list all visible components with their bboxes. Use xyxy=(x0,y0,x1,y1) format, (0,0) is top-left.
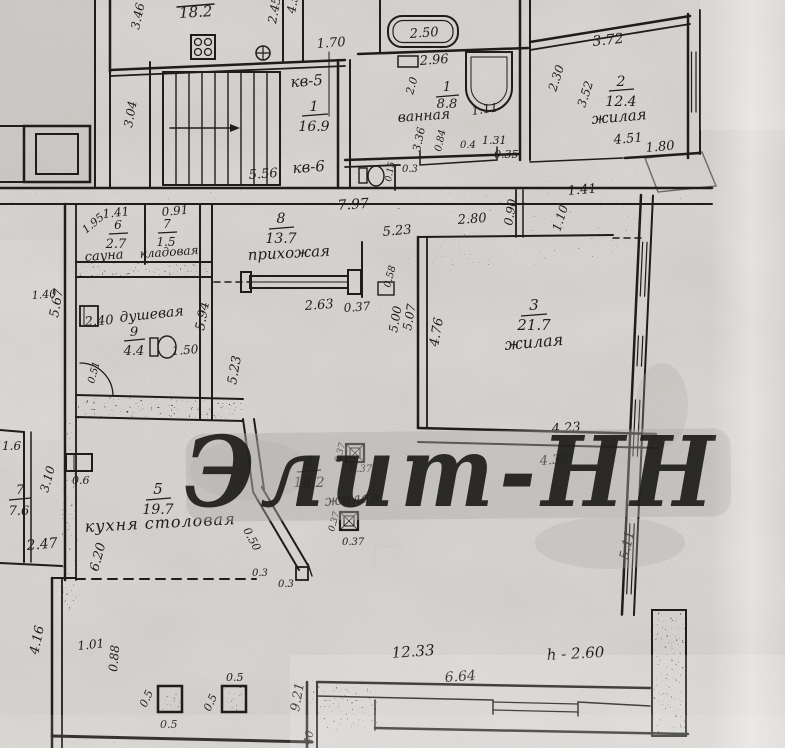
floor-plan-svg: 18.2 3.46 3.04 2.45 4.5 кв-5 1 16.9 кв-6… xyxy=(0,0,785,748)
scanned-floor-plan: 18.2 3.46 3.04 2.45 4.5 кв-5 1 16.9 кв-6… xyxy=(0,0,785,748)
paper-overlays xyxy=(0,0,785,748)
